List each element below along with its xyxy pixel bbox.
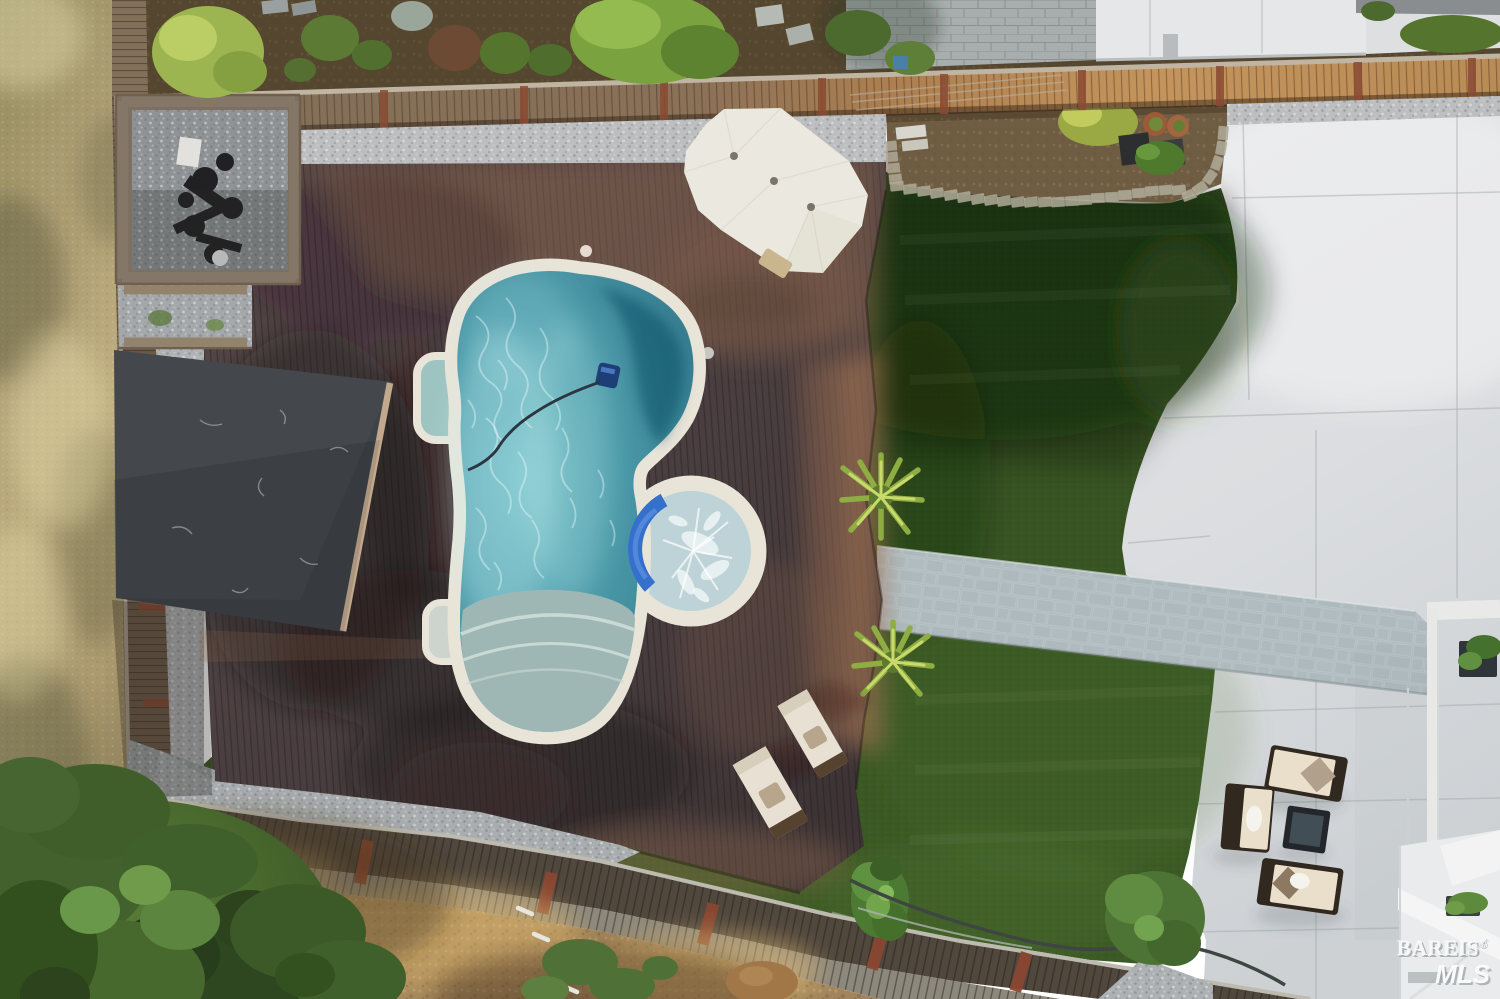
svg-text:MLS: MLS (1435, 959, 1491, 989)
svg-text:BAREIS®: BAREIS® (1397, 935, 1487, 960)
